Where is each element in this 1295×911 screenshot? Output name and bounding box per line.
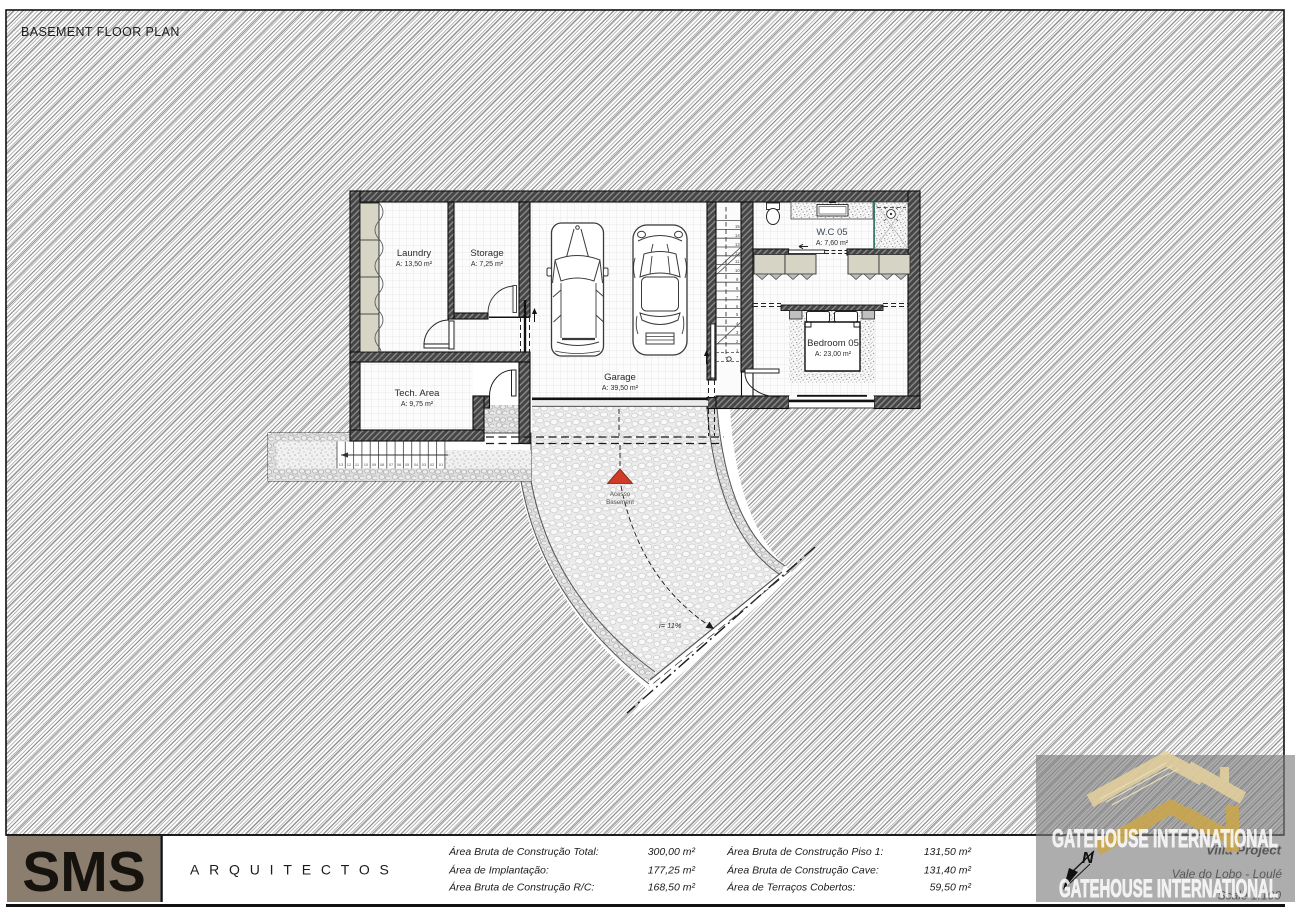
svg-text:Área Bruta de Construção R/C:: Área Bruta de Construção R/C: bbox=[448, 881, 594, 894]
svg-text:12: 12 bbox=[735, 251, 740, 256]
svg-text:05: 05 bbox=[405, 462, 410, 467]
svg-text:Área de Terraços Cobertos:: Área de Terraços Cobertos: bbox=[726, 881, 856, 894]
svg-text:131,50 m²: 131,50 m² bbox=[924, 846, 972, 858]
svg-text:Tech. Area: Tech. Area bbox=[395, 388, 441, 399]
svg-text:GATEHOUSE INTERNATIONAL: GATEHOUSE INTERNATIONAL bbox=[1059, 875, 1278, 903]
svg-text:Laundry: Laundry bbox=[397, 248, 432, 259]
svg-text:09: 09 bbox=[372, 462, 377, 467]
svg-text:131,40 m²: 131,40 m² bbox=[924, 865, 972, 877]
svg-text:Área Bruta de Construção Piso: Área Bruta de Construção Piso 1: bbox=[726, 845, 884, 858]
svg-text:10: 10 bbox=[364, 462, 369, 467]
svg-text:300,00 m²: 300,00 m² bbox=[648, 846, 696, 858]
svg-text:Área Bruta de Construção Total: Área Bruta de Construção Total: bbox=[448, 845, 599, 858]
svg-text:12: 12 bbox=[347, 462, 352, 467]
svg-text:03: 03 bbox=[422, 462, 427, 467]
svg-text:04: 04 bbox=[414, 462, 419, 467]
svg-text:10: 10 bbox=[735, 268, 740, 273]
svg-text:W.C 05: W.C 05 bbox=[816, 227, 847, 238]
svg-text:Basement: Basement bbox=[606, 499, 634, 506]
svg-text:A: 23,00 m²: A: 23,00 m² bbox=[815, 351, 852, 358]
svg-text:Acesso: Acesso bbox=[610, 491, 631, 498]
svg-text:06: 06 bbox=[397, 462, 402, 467]
svg-text:01: 01 bbox=[439, 462, 444, 467]
svg-text:A: 7,60 m²: A: 7,60 m² bbox=[816, 240, 849, 247]
svg-text:A: 7,25 m²: A: 7,25 m² bbox=[471, 261, 504, 268]
svg-text:07: 07 bbox=[389, 462, 394, 467]
svg-text:14: 14 bbox=[735, 233, 740, 238]
svg-text:11: 11 bbox=[735, 259, 740, 264]
svg-text:168,50 m²: 168,50 m² bbox=[648, 882, 696, 894]
svg-text:Garage: Garage bbox=[604, 372, 636, 383]
svg-text:BASEMENT FLOOR PLAN: BASEMENT FLOOR PLAN bbox=[21, 25, 180, 39]
svg-text:A: 13,50 m²: A: 13,50 m² bbox=[396, 261, 433, 268]
svg-text:A: 9,75 m²: A: 9,75 m² bbox=[401, 401, 434, 408]
svg-text:ARQUITECTOS: ARQUITECTOS bbox=[190, 862, 399, 878]
svg-text:Área Bruta de Construção Cave:: Área Bruta de Construção Cave: bbox=[726, 864, 879, 877]
svg-text:13: 13 bbox=[339, 462, 344, 467]
svg-text:Storage: Storage bbox=[470, 248, 503, 259]
svg-text:13: 13 bbox=[735, 242, 740, 247]
svg-text:02: 02 bbox=[430, 462, 435, 467]
svg-text:08: 08 bbox=[380, 462, 385, 467]
svg-text:SMS: SMS bbox=[22, 840, 146, 904]
svg-text:Bedroom 05: Bedroom 05 bbox=[807, 338, 859, 349]
svg-text:59,50 m²: 59,50 m² bbox=[930, 882, 972, 894]
svg-text:i= 11%: i= 11% bbox=[659, 621, 682, 630]
svg-text:177,25 m²: 177,25 m² bbox=[648, 865, 696, 877]
svg-text:Área de Implantação:: Área de Implantação: bbox=[448, 864, 549, 877]
svg-text:15: 15 bbox=[735, 224, 740, 229]
svg-text:A: 39,50 m²: A: 39,50 m² bbox=[602, 385, 639, 392]
svg-text:GATEHOUSE INTERNATIONAL: GATEHOUSE INTERNATIONAL bbox=[1052, 825, 1278, 853]
